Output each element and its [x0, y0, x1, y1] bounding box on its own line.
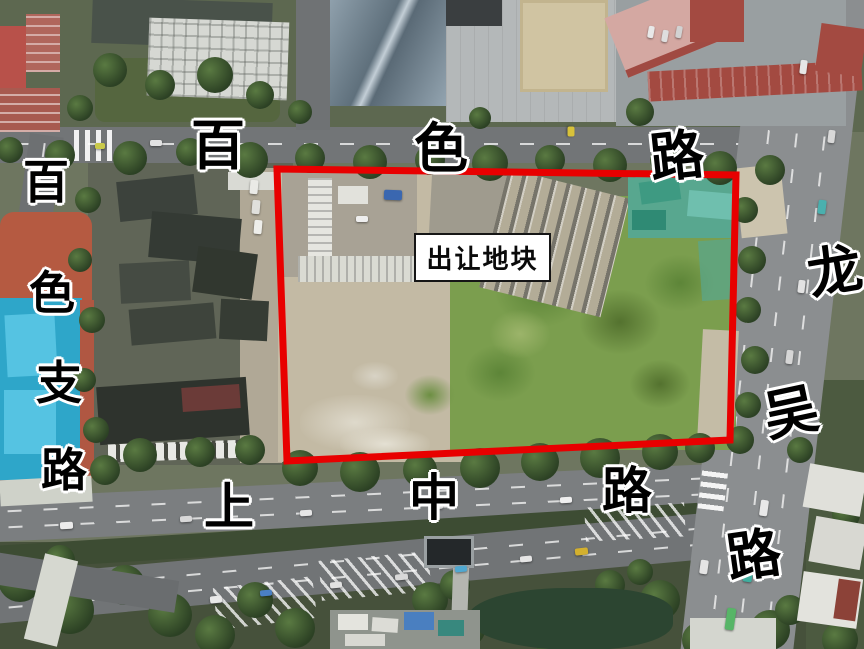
road-label-baise-2: 色 — [414, 122, 468, 176]
road-label-baise-branch-3: 支 — [36, 360, 82, 406]
road-label-longwu-3: 路 — [724, 526, 785, 587]
road-label-shangzhong-3: 路 — [602, 466, 652, 516]
road-label-baise-1: 百 — [191, 119, 245, 173]
road-label-shangzhong-2: 中 — [409, 473, 459, 523]
road-label-baise-branch-4: 路 — [41, 447, 87, 493]
parcel-label-box: 出让地块 — [414, 233, 551, 282]
aerial-photo: 出让地块 百 色 路 百 色 支 路 上 中 路 龙 吴 路 — [0, 0, 864, 649]
road-label-baise-3: 路 — [647, 127, 706, 186]
road-label-baise-branch-1: 百 — [23, 159, 69, 205]
road-label-shangzhong-1: 上 — [204, 482, 254, 532]
parcel-label-text: 出让地块 — [426, 239, 538, 276]
parcel-outline-polygon — [277, 169, 736, 461]
road-label-longwu-2: 吴 — [759, 381, 823, 445]
road-label-longwu-1: 龙 — [804, 241, 864, 304]
road-label-baise-branch-2: 色 — [29, 270, 75, 316]
